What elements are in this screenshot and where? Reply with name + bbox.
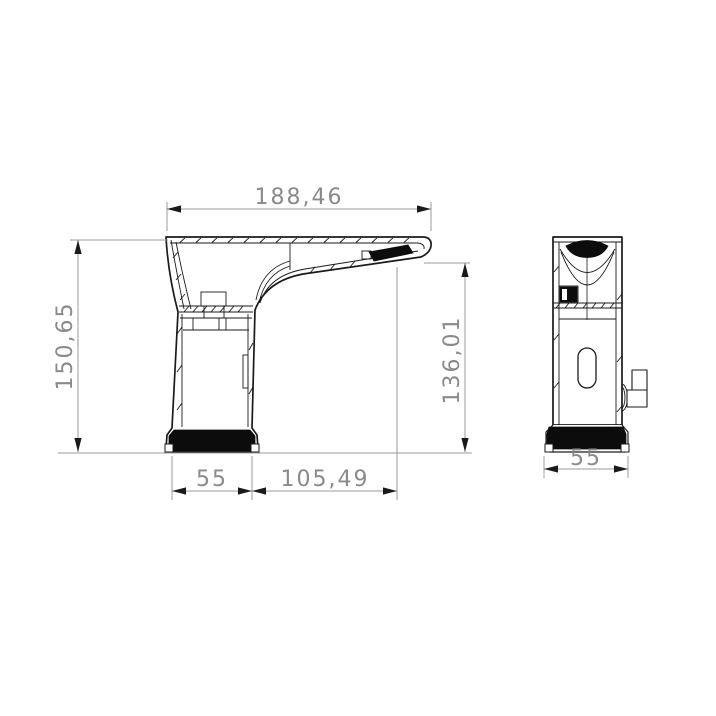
front-body xyxy=(553,237,622,425)
arrow-top xyxy=(74,240,81,254)
side-view xyxy=(165,237,431,452)
side-silhouette xyxy=(166,237,431,452)
arrow-right xyxy=(614,465,628,472)
front-view xyxy=(545,237,647,452)
dim-front-base-width-label: 55 xyxy=(570,446,602,471)
arrow-bottom xyxy=(461,438,468,452)
arrow-right xyxy=(417,205,431,212)
handle-arm-upper xyxy=(632,370,647,390)
arrow-bottom xyxy=(74,438,81,452)
arrow-left xyxy=(252,487,266,494)
front-block-highlight xyxy=(562,289,567,300)
dimension-spout-reach: 105,49 xyxy=(252,267,397,500)
arrow-left xyxy=(172,487,186,494)
front-base-foot-left xyxy=(545,444,553,452)
dimension-outlet-height: 136,01 xyxy=(424,263,470,452)
technical-drawing: 188,46 150,65 136,01 55 105,49 55 xyxy=(0,0,716,716)
arrow-right xyxy=(238,487,252,494)
dim-spout-reach-label: 105,49 xyxy=(281,467,370,492)
dim-top-width-label: 188,46 xyxy=(255,185,344,210)
arrow-left xyxy=(167,205,181,212)
dimension-base-width: 55 xyxy=(172,456,252,500)
dim-overall-height-label: 150,65 xyxy=(53,302,78,391)
side-base-foot-left xyxy=(165,444,173,452)
side-base xyxy=(169,430,255,451)
arrow-right xyxy=(383,487,397,494)
front-base-foot-right xyxy=(621,444,629,452)
side-base-foot-right xyxy=(251,444,259,452)
handle-arm-lower xyxy=(627,390,647,407)
drawing-canvas: 188,46 150,65 136,01 55 105,49 55 xyxy=(0,0,716,716)
dimension-overall-height: 150,65 xyxy=(53,240,168,452)
arrow-top xyxy=(461,263,468,277)
dimension-top-width: 188,46 xyxy=(167,185,431,231)
dim-base-width-label: 55 xyxy=(196,467,228,492)
dim-outlet-height-label: 136,01 xyxy=(440,316,465,405)
arrow-left xyxy=(544,465,558,472)
